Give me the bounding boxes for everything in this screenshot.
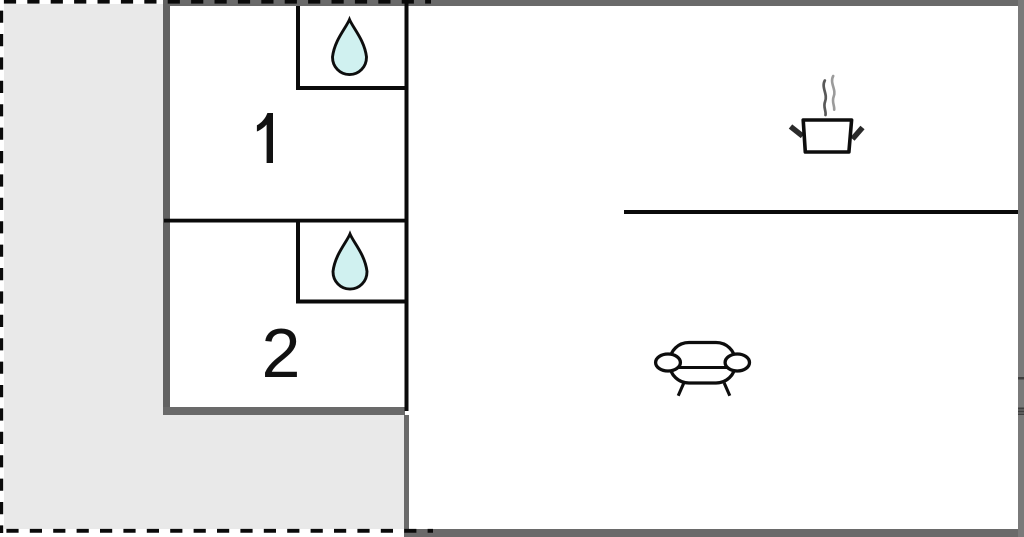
svg-text:2: 2 [262, 314, 301, 392]
